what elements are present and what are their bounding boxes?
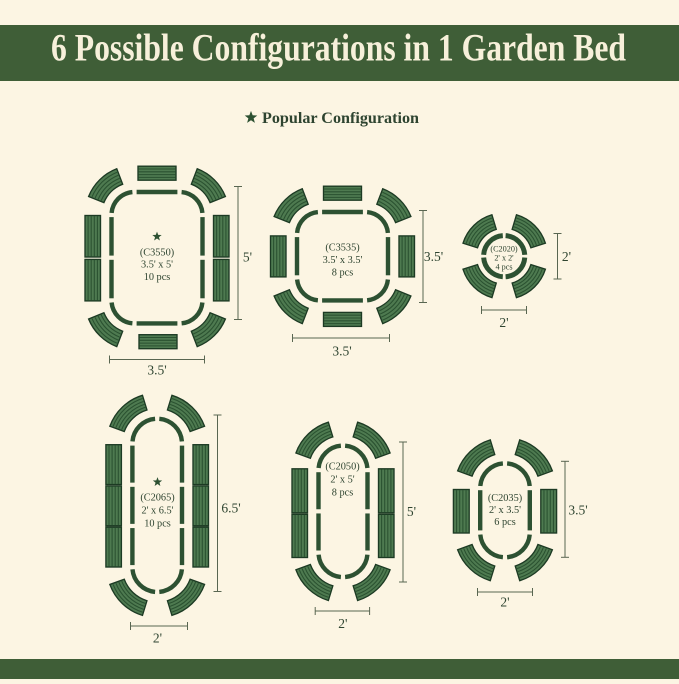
svg-text:3.5' x 5': 3.5' x 5' (141, 259, 173, 270)
svg-text:(C2035): (C2035) (488, 493, 522, 504)
svg-text:3.5': 3.5' (147, 363, 166, 378)
svg-text:4 pcs: 4 pcs (495, 263, 512, 272)
svg-text:2': 2' (500, 594, 509, 609)
svg-text:(C2020): (C2020) (490, 245, 518, 254)
svg-text:2': 2' (499, 315, 508, 330)
svg-text:5': 5' (407, 504, 416, 519)
svg-text:Popular Configuration: Popular Configuration (262, 108, 419, 127)
svg-text:2' x 6.5': 2' x 6.5' (141, 506, 173, 517)
svg-text:3.5': 3.5' (424, 249, 443, 264)
svg-text:6 pcs: 6 pcs (494, 517, 515, 528)
svg-text:(C3550): (C3550) (140, 247, 174, 258)
svg-text:6 Possible Configurations in 1: 6 Possible Configurations in 1 Garden Be… (51, 26, 626, 70)
svg-text:2': 2' (562, 249, 571, 264)
svg-text:2': 2' (338, 616, 347, 631)
svg-text:(C3535): (C3535) (325, 243, 359, 254)
svg-text:(C2065): (C2065) (140, 493, 174, 504)
svg-text:3.5' x 3.5': 3.5' x 3.5' (323, 255, 363, 266)
svg-text:8 pcs: 8 pcs (332, 487, 353, 498)
svg-text:2' x 3.5': 2' x 3.5' (489, 505, 521, 516)
svg-text:10 pcs: 10 pcs (144, 272, 171, 283)
svg-text:2' x 5': 2' x 5' (330, 474, 354, 485)
svg-text:8 pcs: 8 pcs (332, 268, 353, 279)
svg-text:10 pcs: 10 pcs (144, 519, 171, 530)
svg-text:2': 2' (153, 631, 162, 646)
svg-text:(C2050): (C2050) (325, 461, 359, 472)
svg-text:5': 5' (243, 250, 252, 265)
svg-text:3.5': 3.5' (332, 344, 351, 359)
svg-text:2' x 2': 2' x 2' (494, 254, 514, 263)
svg-text:3.5': 3.5' (568, 503, 587, 518)
svg-text:6.5': 6.5' (221, 501, 240, 516)
